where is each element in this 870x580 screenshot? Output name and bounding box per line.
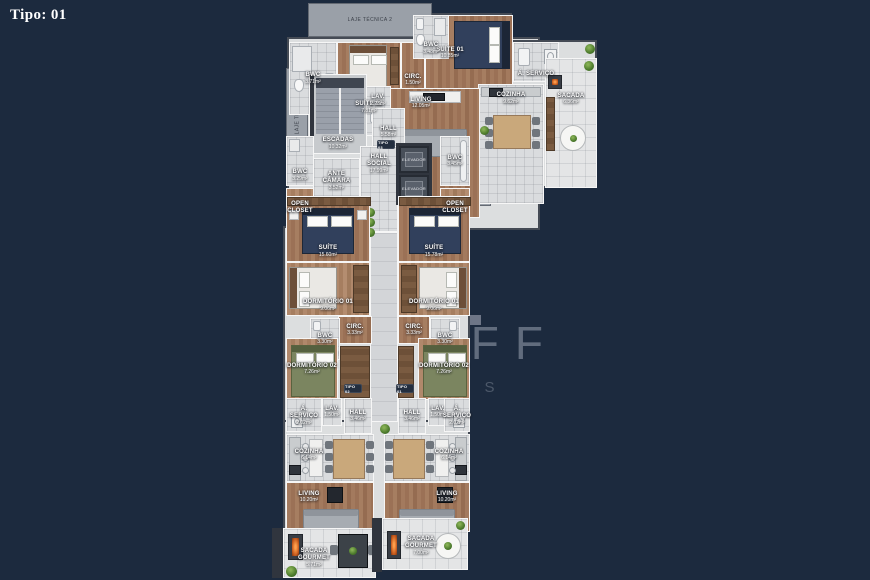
utility-sink xyxy=(518,48,530,66)
stool xyxy=(449,467,456,474)
room-dorm2-right: DORMITÓRIO 027.26m² xyxy=(418,338,470,400)
bed xyxy=(409,208,461,254)
label-name: HALL SOCIAL xyxy=(361,154,397,168)
island xyxy=(435,439,449,477)
label-area: 10.20m² xyxy=(300,497,318,503)
room-label: LAV.1.50m² xyxy=(323,399,341,425)
room-sacada-gourmet-left: SACADA GOURMET5.71m² xyxy=(283,528,376,578)
stool xyxy=(449,455,456,462)
plant xyxy=(380,424,390,434)
chair xyxy=(485,141,493,149)
label-area: 3.48m² xyxy=(423,49,439,55)
chair xyxy=(366,465,374,473)
bathtub xyxy=(460,140,467,182)
tv xyxy=(327,487,343,503)
label-name: ESCADAS xyxy=(323,137,354,144)
label-name: ANTE CÂMARA xyxy=(314,171,359,185)
unit-tag-tipo-01: TIPO 01 xyxy=(396,384,414,393)
label-area: 3.46m² xyxy=(404,416,420,422)
plant xyxy=(585,44,595,54)
plant xyxy=(584,61,594,71)
chair xyxy=(426,453,434,461)
label-area: 2.28m² xyxy=(370,101,386,107)
chair xyxy=(385,465,393,473)
shower xyxy=(292,46,312,72)
label-name: LAV. xyxy=(325,406,338,413)
stove xyxy=(289,465,301,475)
bed xyxy=(302,208,354,254)
pillow xyxy=(448,353,466,363)
dining-table xyxy=(333,439,365,479)
chair xyxy=(366,441,374,449)
tag-text: TIPO 03 xyxy=(378,140,394,150)
room-living-bot-left: LIVING10.20m² xyxy=(286,482,374,532)
room-dorm1-right: DORMITÓRIO 019.06m² xyxy=(398,262,470,316)
room-bwc-mid-right: BWC3.45m² xyxy=(440,136,470,186)
bed xyxy=(289,267,337,309)
label-area: 3.33m² xyxy=(347,330,363,336)
balcony-counter xyxy=(546,97,555,151)
plant xyxy=(349,547,357,555)
shower xyxy=(434,18,446,36)
pillow xyxy=(446,291,457,307)
room-cozinha-bot-right: COZINHA6.14m² xyxy=(384,434,470,482)
pillow xyxy=(316,353,334,363)
chair xyxy=(532,117,540,125)
headboard xyxy=(502,22,509,68)
toilet xyxy=(294,79,304,92)
label-name: SACADA xyxy=(558,93,585,100)
label-name: LAV. xyxy=(431,406,444,413)
room-label: CIRC.3.33m² xyxy=(339,317,371,343)
stool xyxy=(302,443,309,450)
tv xyxy=(437,487,453,503)
room-suite-left: SUÍTE15.60m² xyxy=(286,196,370,262)
label-area: 5.58m² xyxy=(381,132,397,138)
chair xyxy=(325,465,333,473)
pillow xyxy=(331,216,352,227)
chair xyxy=(532,129,540,137)
balcony-divider xyxy=(372,518,382,572)
label-name: LIVING xyxy=(298,491,319,498)
room-hall-bot-left: HALL3.46m² xyxy=(344,398,372,434)
label-area: 7.00m² xyxy=(413,550,429,556)
room-hall-bot-right: HALL3.46m² xyxy=(398,398,426,434)
dining-table xyxy=(493,115,531,149)
chair xyxy=(532,141,540,149)
chair xyxy=(385,453,393,461)
chair xyxy=(325,441,333,449)
label-area: 3.46m² xyxy=(350,416,366,422)
washer-drum xyxy=(294,418,300,425)
pillow xyxy=(371,55,387,65)
label-name: BWC xyxy=(293,169,308,176)
tag-text: TIPO 02 xyxy=(345,384,361,394)
chair xyxy=(426,441,434,449)
sofa-back xyxy=(400,510,454,516)
unit-tag-tipo-03: TIPO 03 xyxy=(377,140,395,149)
label-area: 1.50m² xyxy=(405,80,421,86)
chair xyxy=(385,441,393,449)
wardrobe xyxy=(390,47,399,85)
label-name: CIRC. xyxy=(404,74,421,81)
room-escadas: ESCADAS10.32m² xyxy=(309,74,367,154)
tv xyxy=(423,93,445,101)
label-area: 9.62m² xyxy=(503,99,519,105)
pillow xyxy=(446,272,457,288)
stool xyxy=(302,467,309,474)
plant xyxy=(286,566,297,577)
room-lav-bot-left: LAV.1.50m² xyxy=(322,398,342,426)
headboard xyxy=(292,346,334,352)
stove xyxy=(489,88,503,97)
grill xyxy=(548,75,562,89)
chair xyxy=(325,453,333,461)
central-corridor xyxy=(370,232,398,422)
tag-text: TIPO 01 xyxy=(397,384,413,394)
pillow xyxy=(307,216,328,227)
plant xyxy=(480,126,489,135)
plant xyxy=(444,542,452,550)
pillow xyxy=(296,353,314,363)
grill-fire xyxy=(292,538,299,556)
headboard xyxy=(459,268,466,308)
sink xyxy=(313,321,321,331)
stool xyxy=(302,455,309,462)
chair xyxy=(485,117,493,125)
room-cozinha-bot-left: COZINHA6.14m² xyxy=(286,434,374,482)
room-cozinha-top: COZINHA9.62m² xyxy=(478,84,544,204)
plant xyxy=(570,135,577,142)
bed xyxy=(419,267,467,309)
room-sacada-gourmet-right: SACADA GOURMET7.00m² xyxy=(382,518,468,570)
label-name: HALL xyxy=(350,410,367,417)
wardrobe xyxy=(353,265,369,313)
room-bwc-mid-left: BWC3.29m² xyxy=(286,136,314,186)
shower xyxy=(289,139,300,152)
room-label: HALL3.46m² xyxy=(399,399,425,433)
wardrobe xyxy=(287,197,371,206)
room-servico-bot-right: Á. SERVIÇO2.02m² xyxy=(444,398,470,432)
sofa-back xyxy=(304,510,358,516)
dining-table xyxy=(393,439,425,479)
label-area: 6.36m² xyxy=(563,99,579,105)
floor-plan: LAJE TÉCNICA 2 LAJE TÉCNICA 1 LAJE TÉCNI… xyxy=(0,0,870,580)
grill-fire xyxy=(391,535,397,555)
stair-landing xyxy=(316,78,364,88)
room-dorm2-left: DORMITÓRIO 027.26m² xyxy=(286,338,338,400)
label-area: 1.50m² xyxy=(324,412,340,418)
room-suite-right: SUÍTE15.78m² xyxy=(398,196,470,262)
label-area: 3.29m² xyxy=(292,176,308,182)
headboard xyxy=(424,346,466,352)
sink xyxy=(449,321,457,331)
pillow xyxy=(489,27,500,45)
label-area: 17.99m² xyxy=(370,168,388,174)
headboard xyxy=(410,209,460,215)
laje-tecnica-2-label: LAJE TÉCNICA 2 xyxy=(348,17,393,23)
washing-machine xyxy=(291,415,303,428)
bed xyxy=(291,345,335,397)
island xyxy=(309,439,323,477)
pillow xyxy=(299,291,310,307)
washer-drum xyxy=(456,418,462,425)
label-name: LAV. xyxy=(371,94,384,101)
sink xyxy=(416,18,424,30)
pillow xyxy=(353,55,369,65)
sofa xyxy=(303,509,359,529)
room-sacada-top: SACADA6.36m² xyxy=(545,58,597,188)
room-label: LIVING10.20m² xyxy=(289,489,329,505)
floor-plan-canvas: Tipo: 01 WOLFF IMÓVEIS LAJE TÉCNICA 2 LA… xyxy=(0,0,870,580)
elevator-label: ELEVADOR xyxy=(401,148,427,171)
label-area: 3.52m² xyxy=(329,185,345,191)
room-bwc-suite-01: BWC3.48m² xyxy=(413,15,449,59)
nightstand xyxy=(289,210,299,220)
label-area: 3.33m² xyxy=(406,330,422,336)
washing-machine xyxy=(453,415,465,428)
bed xyxy=(454,21,510,69)
chair xyxy=(426,465,434,473)
label-area: 10.32m² xyxy=(329,144,347,150)
label-name: BWC xyxy=(424,42,439,49)
room-servico-bot-left: Á. SERVIÇO2.02m² xyxy=(286,398,322,432)
elevator-1: ELEVADOR xyxy=(399,146,429,173)
wardrobe xyxy=(399,197,471,206)
pillow xyxy=(299,272,310,288)
label-name: CIRC. xyxy=(346,324,363,331)
label-name: CIRC. xyxy=(405,324,422,331)
stair-rail xyxy=(339,88,341,134)
nightstand xyxy=(357,210,367,220)
grill-fire xyxy=(552,79,558,85)
room-circ-left: CIRC.3.33m² xyxy=(338,316,372,344)
label-name: HALL xyxy=(380,126,397,133)
label-area: 5.71m² xyxy=(306,562,322,568)
stove xyxy=(455,465,467,475)
wardrobe xyxy=(401,265,417,313)
grill xyxy=(288,534,303,560)
bed xyxy=(423,345,467,397)
pillow xyxy=(428,353,446,363)
chair xyxy=(366,453,374,461)
label-name: HALL xyxy=(404,410,421,417)
headboard xyxy=(290,268,297,308)
toilet xyxy=(416,34,425,46)
chair xyxy=(330,545,338,555)
room-dorm1-left: DORMITÓRIO 019.06m² xyxy=(286,262,370,316)
pillow xyxy=(438,216,459,227)
plant xyxy=(456,521,465,530)
unit-tag-tipo-02: TIPO 02 xyxy=(344,384,362,393)
room-label: HALL3.46m² xyxy=(345,399,371,433)
stool xyxy=(449,443,456,450)
headboard xyxy=(303,209,353,215)
pillow xyxy=(414,216,435,227)
headboard xyxy=(350,46,386,53)
pillow xyxy=(489,45,500,63)
grill xyxy=(387,531,401,559)
label-area: 12.05m² xyxy=(412,103,430,109)
